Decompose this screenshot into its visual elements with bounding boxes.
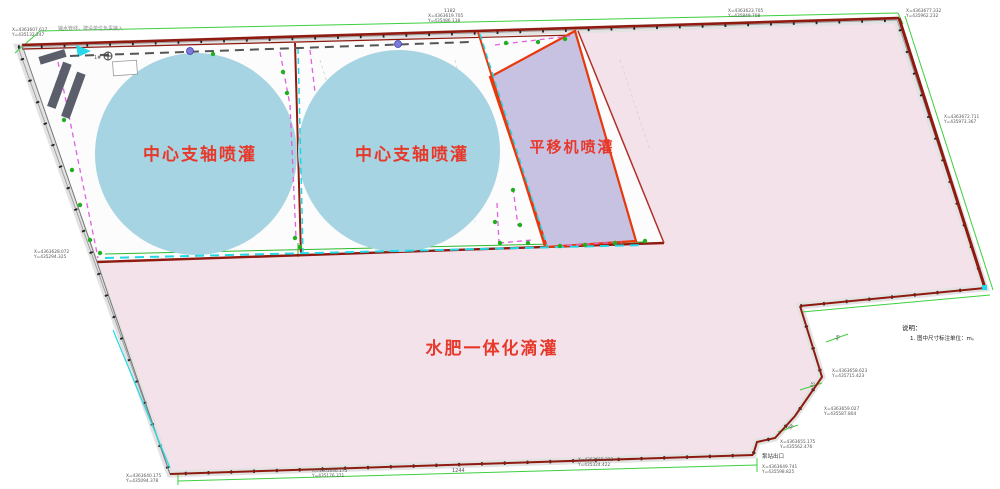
supply-note-label: 输水管线，建设单位负责接入	[58, 25, 123, 32]
coord-tl: X=4363607.617 Y=435132.247	[11, 27, 49, 38]
coord-bm: X=4363655.322 Y=435324.422	[577, 457, 615, 468]
coord-trc: X=4363677.332 Y=435962.232	[905, 8, 943, 19]
dim-step1: 48	[834, 334, 842, 342]
coord-lm: X=4363628.072 Y=435294.325	[33, 249, 71, 260]
site-plan: 中心支轴喷灌 中心支轴喷灌 平移机喷灌 水肥一体化滴灌 输水管线，建设单位负责接…	[0, 0, 1000, 489]
coord-br1: X=4363658.623 Y=435715.423	[831, 368, 869, 379]
pump-station-label: 1#	[94, 55, 101, 61]
coord-br3: X=4363655.175 Y=435562.476	[779, 439, 817, 450]
coord-br2: X=4363659.027 Y=435587.804	[823, 406, 861, 417]
valve-icon	[104, 52, 112, 60]
notes-block: 说明： 1. 图中尺寸标注单位：m。	[902, 323, 977, 342]
coord-tr: X=4363623.705 Y=435849.708	[727, 8, 765, 19]
dim-bottom: 1244	[452, 468, 465, 474]
drawing-canvas: 中心支轴喷灌 中心支轴喷灌 平移机喷灌 水肥一体化滴灌 输水管线，建设单位负责接…	[0, 0, 1000, 489]
coord-br4: X=4363649.741 Y=435598.825	[761, 464, 799, 475]
notes-heading: 说明：	[902, 323, 922, 332]
pump-outlet-label: 泵站出口	[762, 452, 784, 460]
linear-move-label: 平移机喷灌	[529, 138, 614, 156]
notes-item-1: 1. 图中尺寸标注单位：m。	[910, 334, 977, 342]
coord-rm: X=4363672.711 Y=435973.367	[943, 114, 981, 125]
coord-tc: X=4363619.705 Y=435486.138	[427, 13, 465, 24]
pivot1-label: 中心支轴喷灌	[143, 144, 257, 165]
pivot2-label: 中心支轴喷灌	[355, 144, 469, 165]
drip-label: 水肥一体化滴灌	[426, 338, 559, 359]
coord-bl: X=4363640.175 Y=435094.378	[125, 473, 163, 484]
coord-bl2: X=4363646.175 Y=435176.371	[311, 468, 349, 479]
